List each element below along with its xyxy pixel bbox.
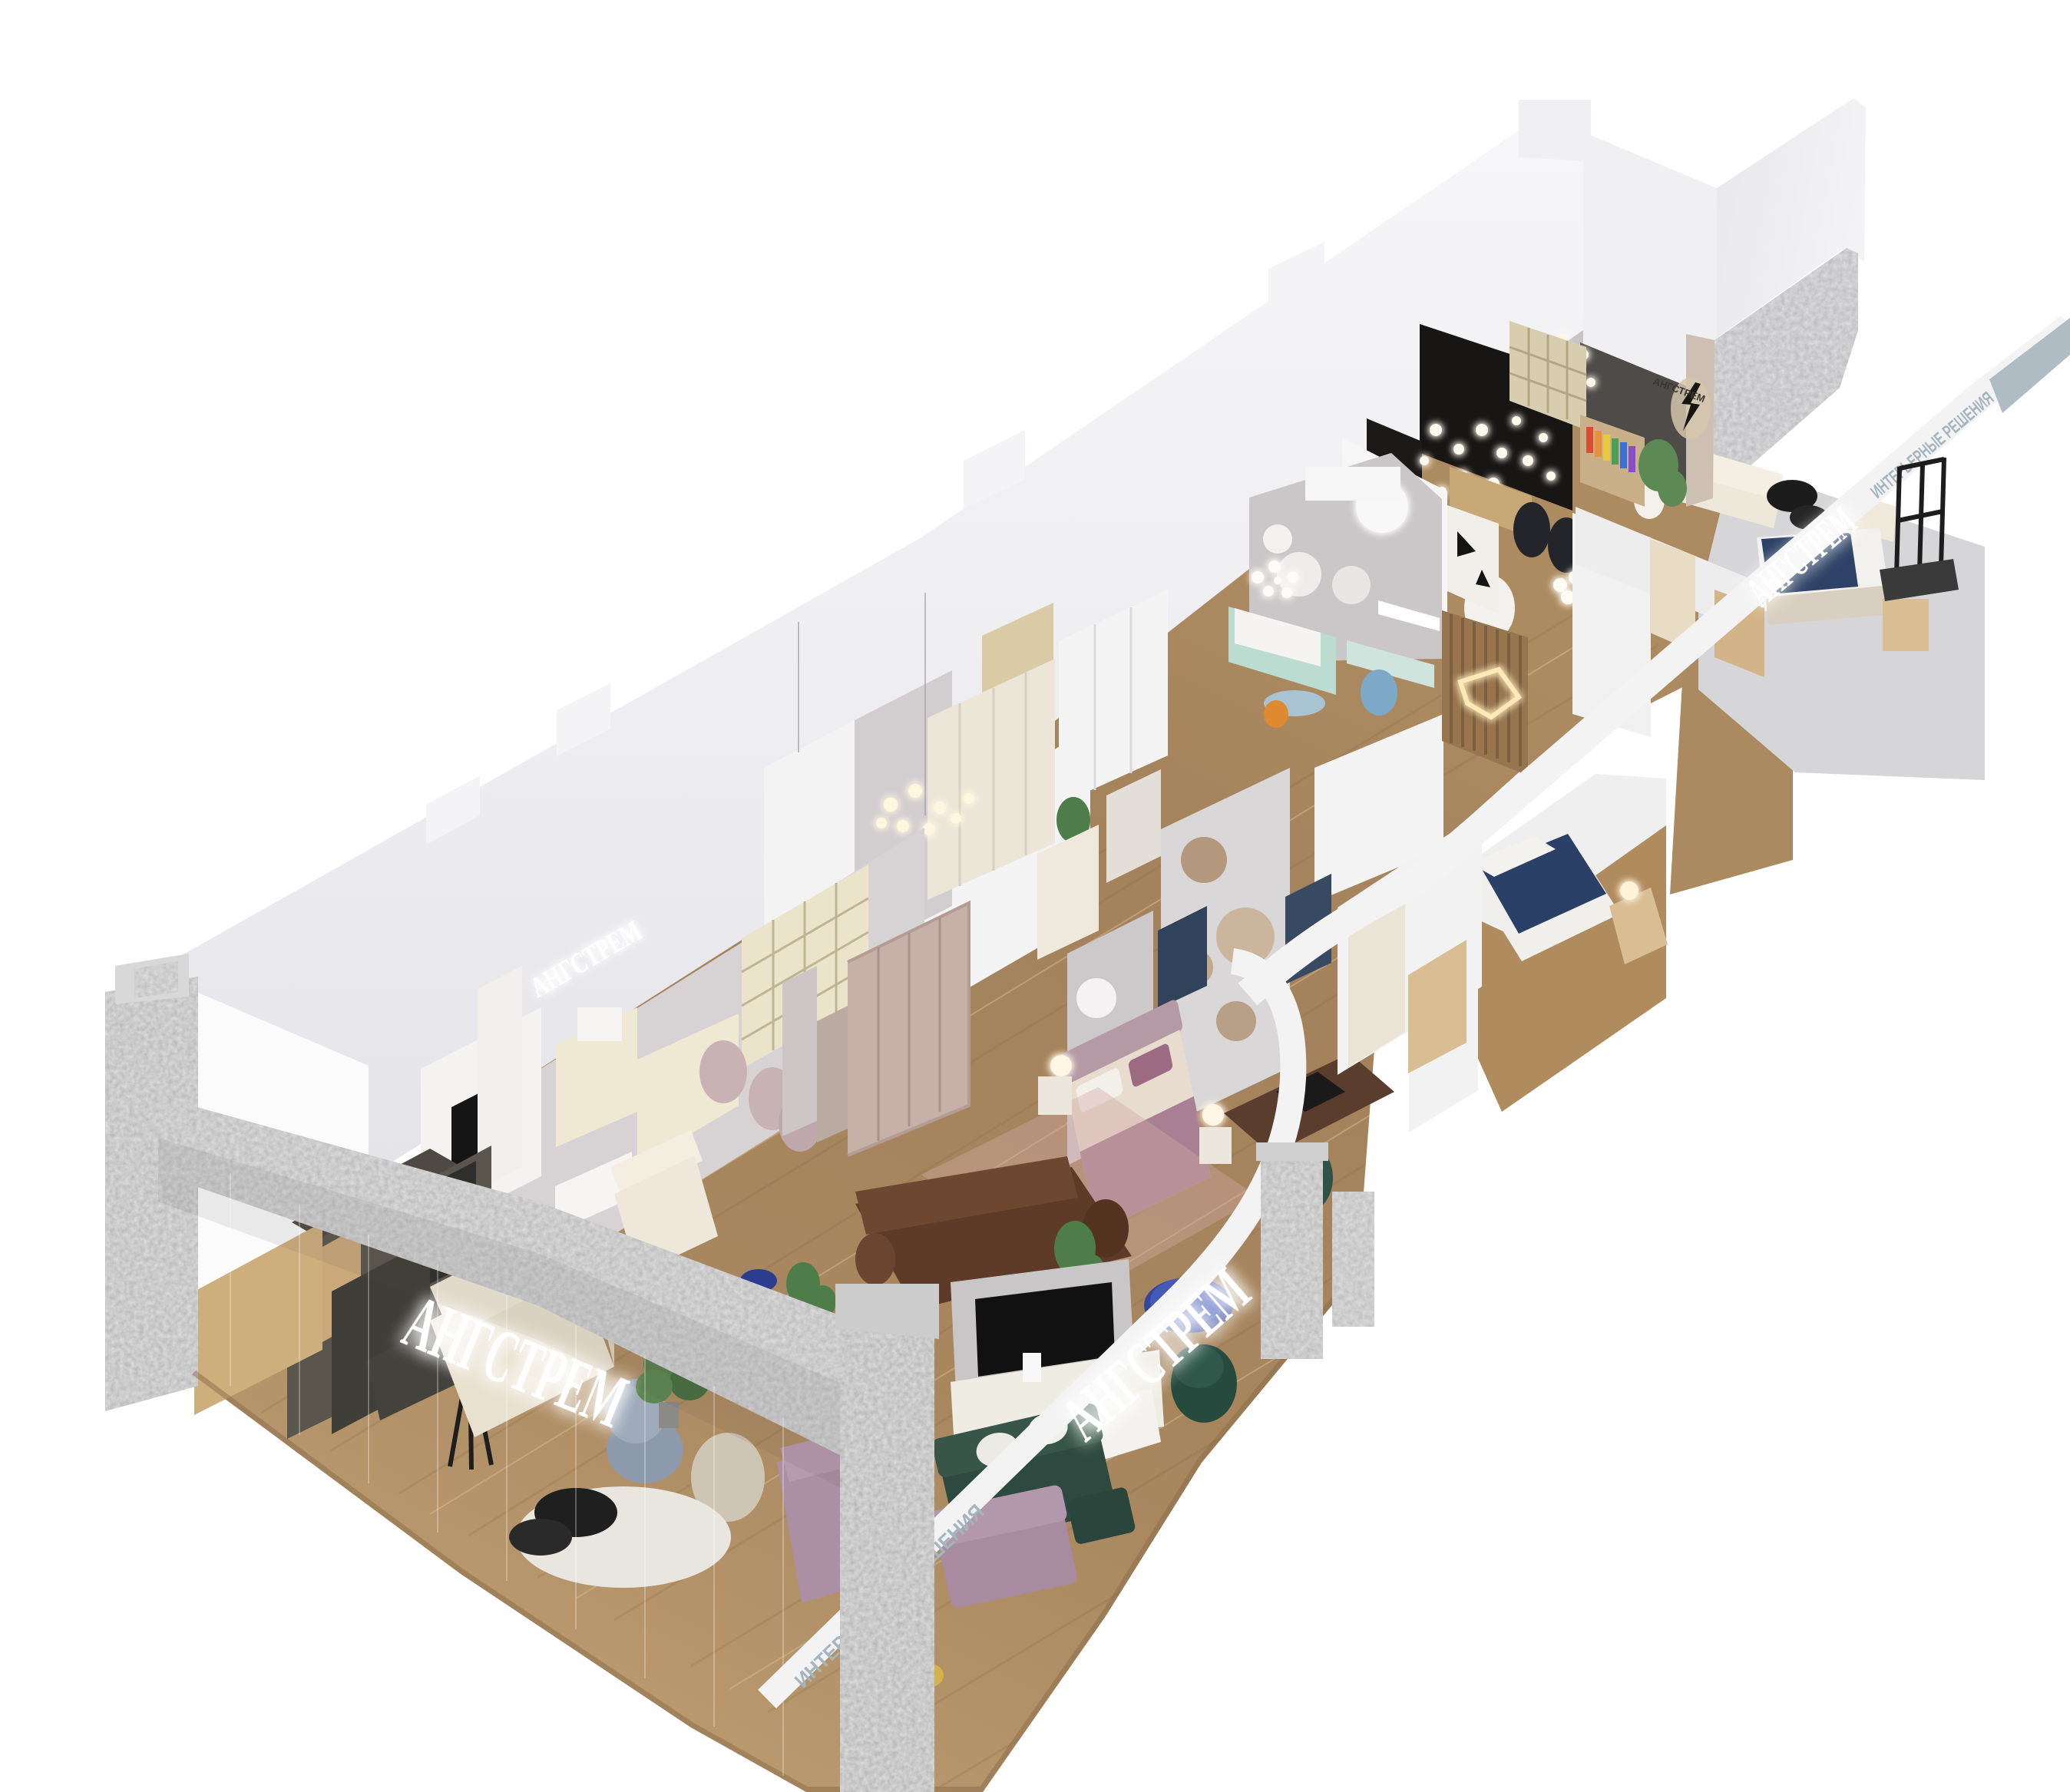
svg-text:ИНТЕРЬЕРНЫЕ РЕШЕНИЯ: ИНТЕРЬЕРНЫЕ РЕШЕНИЯ: [1867, 388, 1999, 502]
